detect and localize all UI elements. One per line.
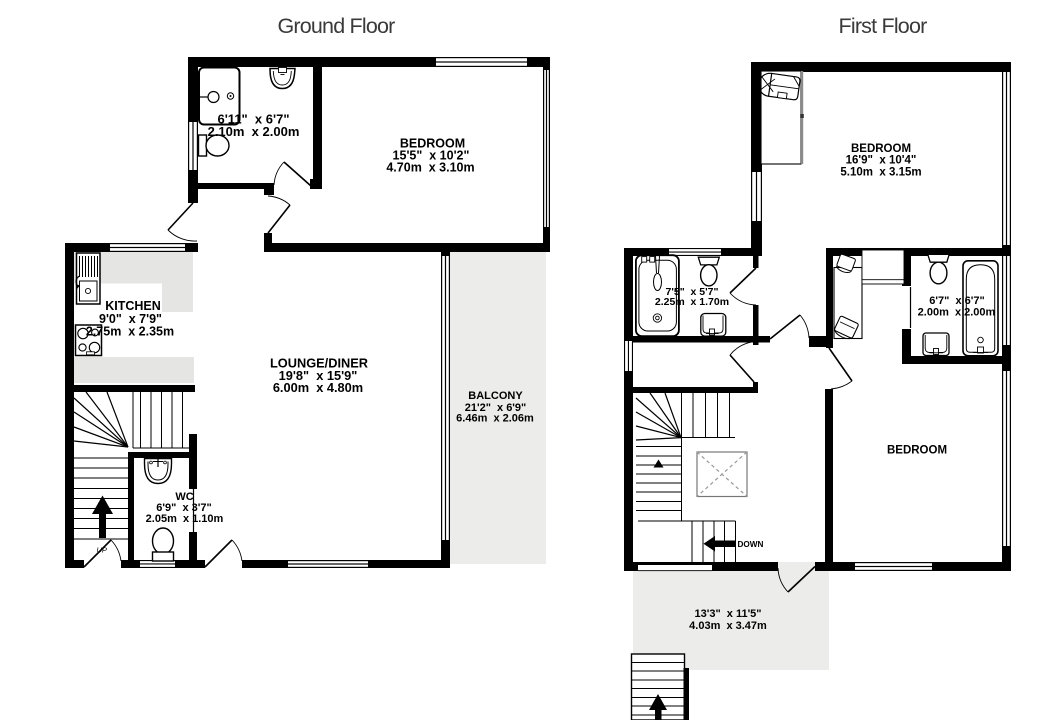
svg-text:13'3" x 11'5": 13'3" x 11'5"	[694, 608, 761, 620]
svg-text:DOWN: DOWN	[738, 540, 764, 549]
svg-text:2.00m x 2.00m: 2.00m x 2.00m	[918, 307, 996, 319]
svg-text:UP: UP	[97, 546, 107, 555]
svg-text:2.05m x 1.10m: 2.05m x 1.10m	[146, 513, 224, 525]
svg-text:6.00m x 4.80m: 6.00m x 4.80m	[273, 380, 363, 395]
svg-text:2.25m x 1.70m: 2.25m x 1.70m	[655, 296, 729, 308]
svg-text:6'7" x 6'7": 6'7" x 6'7"	[929, 295, 984, 307]
svg-text:2.10m x 2.00m: 2.10m x 2.00m	[208, 124, 300, 139]
svg-text:2.75m x 2.35m: 2.75m x 2.35m	[86, 325, 174, 339]
svg-text:BEDROOM: BEDROOM	[851, 143, 911, 155]
svg-text:Ground Floor: Ground Floor	[277, 14, 395, 38]
svg-text:6.46m x 2.06m: 6.46m x 2.06m	[456, 412, 534, 424]
svg-text:4.70m x 3.10m: 4.70m x 3.10m	[386, 161, 474, 175]
svg-text:4.03m x 3.47m: 4.03m x 3.47m	[689, 620, 767, 632]
svg-text:16'9" x 10'4": 16'9" x 10'4"	[846, 155, 917, 167]
svg-text:5.10m x 3.15m: 5.10m x 3.15m	[840, 166, 921, 178]
svg-text:First Floor: First Floor	[839, 14, 928, 38]
svg-text:BALCONY: BALCONY	[468, 390, 523, 402]
svg-text:BEDROOM: BEDROOM	[887, 445, 947, 457]
